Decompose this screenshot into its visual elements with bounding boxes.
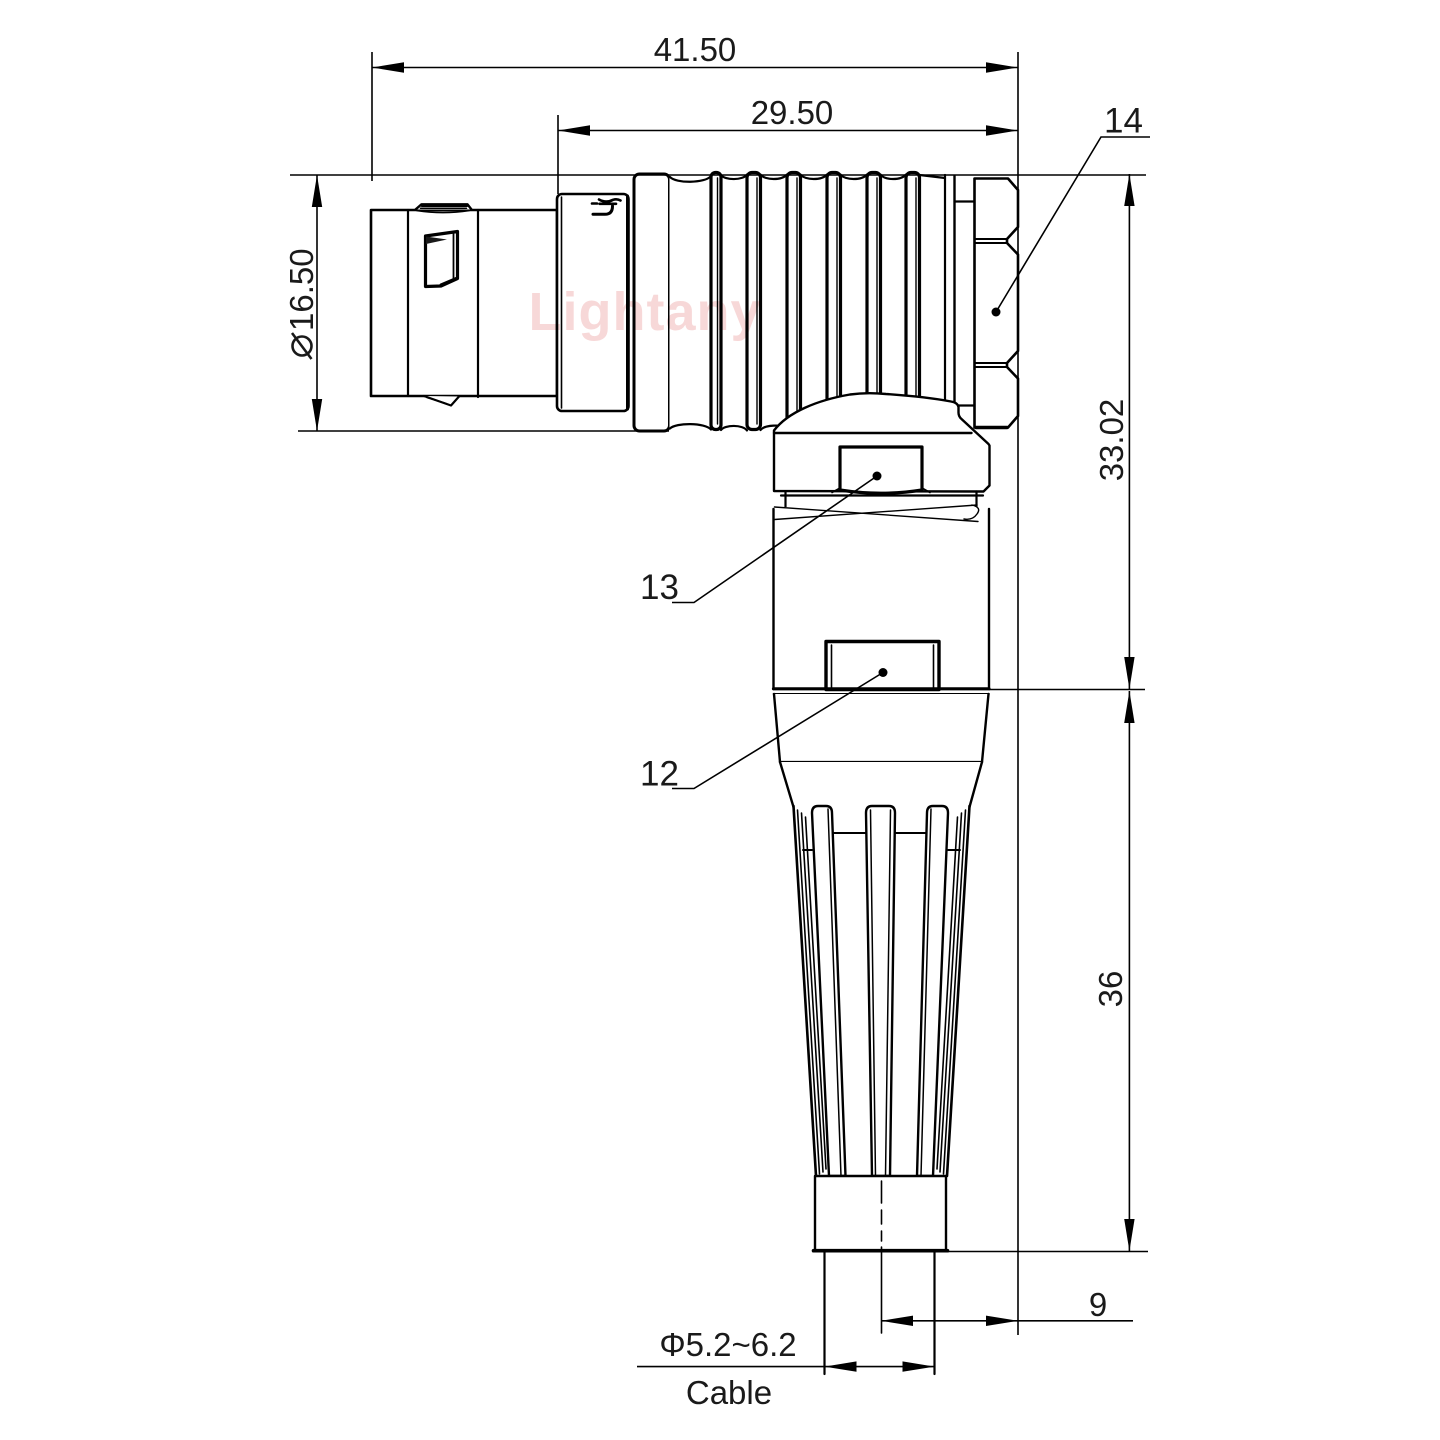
- svg-text:41.50: 41.50: [654, 31, 737, 68]
- svg-text:13: 13: [640, 568, 679, 607]
- svg-text:16.50: 16.50: [283, 248, 320, 331]
- svg-text:9: 9: [1089, 1286, 1107, 1323]
- svg-text:29.50: 29.50: [751, 94, 834, 131]
- svg-text:Φ5.2~6.2: Φ5.2~6.2: [659, 1326, 796, 1363]
- svg-text:Cable: Cable: [686, 1374, 772, 1411]
- svg-text:12: 12: [640, 755, 679, 794]
- svg-text:33.02: 33.02: [1093, 399, 1130, 482]
- svg-text:Lightany: Lightany: [529, 282, 762, 342]
- svg-text:36: 36: [1092, 971, 1129, 1008]
- svg-text:14: 14: [1104, 102, 1143, 141]
